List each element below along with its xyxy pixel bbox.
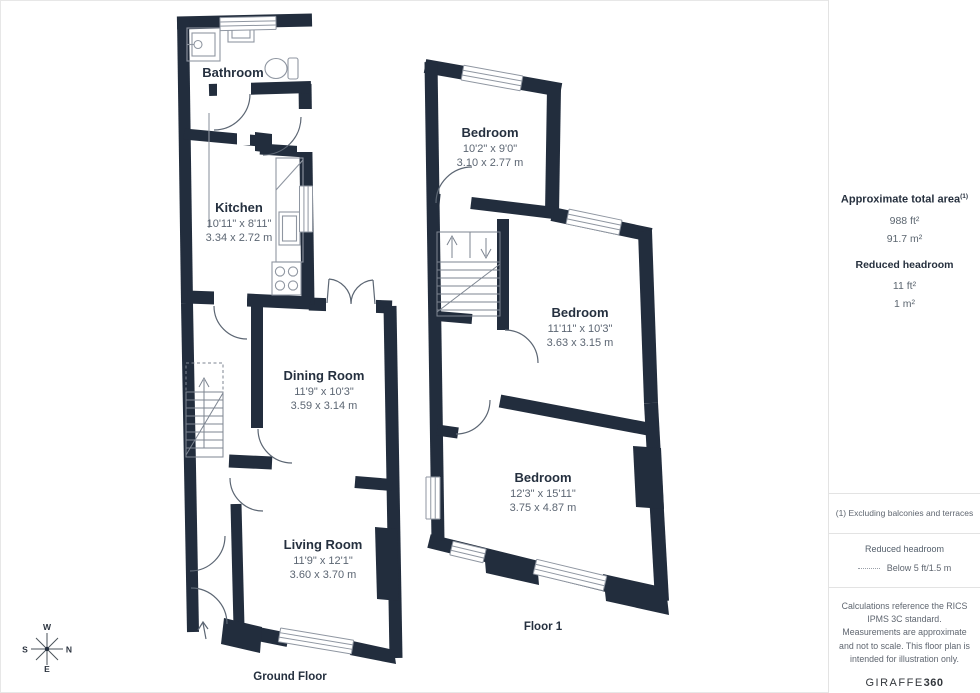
window-icon: [450, 541, 486, 563]
dining-room-dims-imperial: 11'9" x 10'3": [294, 386, 354, 398]
bedroom-large-dims-metric: 3.75 x 4.87 m: [510, 502, 577, 514]
total-area-title-text: Approximate total area: [841, 194, 960, 206]
living-room-dims-imperial: 11'9" x 12'1": [293, 555, 353, 567]
living-room-label: Living Room: [284, 537, 363, 552]
reduced-headroom-ft: 11 ft²: [829, 280, 980, 292]
area-summary: Approximate total area(1) 988 ft² 91.7 m…: [829, 193, 980, 316]
bedroom-small-dims-metric: 3.10 x 2.77 m: [457, 157, 524, 169]
floor-1-stairs: [437, 232, 500, 316]
ground-floor-label: Ground Floor: [253, 671, 327, 683]
kitchen-dims-imperial: 10'11" x 8'11": [207, 218, 272, 230]
bathroom-kitchen-fixtures: [187, 23, 303, 295]
compass-icon: W N S E: [22, 622, 72, 674]
ground-floor-plan: Bathroom Kitchen 10'11" x 8'11" 3.34 x 2…: [177, 17, 399, 683]
entrance-arrow-icon: [198, 622, 208, 639]
reduced-headroom-title: Reduced headroom: [829, 259, 980, 271]
living-room-dims-metric: 3.60 x 3.70 m: [290, 569, 357, 581]
giraffe360-logo: GIRAFFE360: [839, 675, 970, 692]
disclaimer-text: Calculations reference the RICS IPMS 3C …: [839, 600, 970, 666]
window-icon: [278, 628, 353, 654]
window-icon: [461, 65, 523, 90]
windows-layer: [220, 16, 622, 654]
stove-icon: [272, 262, 301, 295]
dining-room-label: Dining Room: [284, 368, 365, 383]
bedroom-mid-dims-metric: 3.63 x 3.15 m: [547, 337, 614, 349]
total-area-title: Approximate total area(1): [829, 193, 980, 206]
ground-floor-walls: [177, 17, 396, 658]
bedroom-mid-label: Bedroom: [551, 305, 608, 320]
floor-1-walls: [425, 62, 663, 601]
dining-room-dims-metric: 3.59 x 3.14 m: [291, 400, 358, 412]
bedroom-large-dims-imperial: 12'3" x 15'11": [510, 488, 576, 500]
kitchen-label: Kitchen: [215, 200, 263, 215]
floor-1-wall-blocks: [484, 446, 669, 615]
bedroom-mid-dims-imperial: 11'11" x 10'3": [548, 323, 613, 335]
floor-1-label: Floor 1: [524, 621, 563, 633]
total-area-ft: 988 ft²: [829, 215, 980, 227]
bedroom-small-label: Bedroom: [461, 125, 518, 140]
ground-floor-door-openings: [214, 80, 376, 314]
legend-value: Below 5 ft/1.5 m: [887, 563, 952, 573]
compass-right-letter: N: [66, 645, 72, 655]
compass-left-letter: S: [22, 645, 28, 655]
reduced-headroom-m: 1 m²: [829, 298, 980, 310]
kitchen-dims-metric: 3.34 x 2.72 m: [206, 232, 273, 244]
total-area-superscript: (1): [960, 193, 968, 200]
window-icon: [566, 209, 622, 235]
window-icon: [300, 186, 313, 232]
info-sidebar: Approximate total area(1) 988 ft² 91.7 m…: [828, 0, 980, 693]
bedroom-large-label: Bedroom: [514, 470, 571, 485]
kitchen-counter-icon: [276, 158, 303, 262]
legend-row: Below 5 ft/1.5 m: [829, 563, 980, 573]
brand-name: GIRAFFE: [865, 677, 923, 689]
dashed-line-icon: [858, 568, 880, 570]
reduced-headroom-legend: Reduced headroom Below 5 ft/1.5 m: [829, 533, 980, 587]
total-area-m: 91.7 m²: [829, 233, 980, 245]
window-icon: [220, 16, 276, 30]
window-icon: [533, 559, 607, 590]
toilet-icon: [288, 58, 298, 79]
area-footnote: (1) Excluding balconies and terraces: [829, 493, 980, 533]
legend-title: Reduced headroom: [829, 544, 980, 554]
window-icon: [426, 477, 440, 519]
disclaimer-section: Calculations reference the RICS IPMS 3C …: [829, 587, 980, 693]
compass-top-letter: W: [43, 622, 52, 632]
brand-number: 360: [924, 677, 944, 689]
compass-bottom-letter: E: [44, 664, 50, 674]
bathroom-label: Bathroom: [202, 65, 263, 80]
floorplan-page: Bathroom Kitchen 10'11" x 8'11" 3.34 x 2…: [0, 0, 980, 693]
bedroom-small-dims-imperial: 10'2" x 9'0": [463, 143, 517, 155]
